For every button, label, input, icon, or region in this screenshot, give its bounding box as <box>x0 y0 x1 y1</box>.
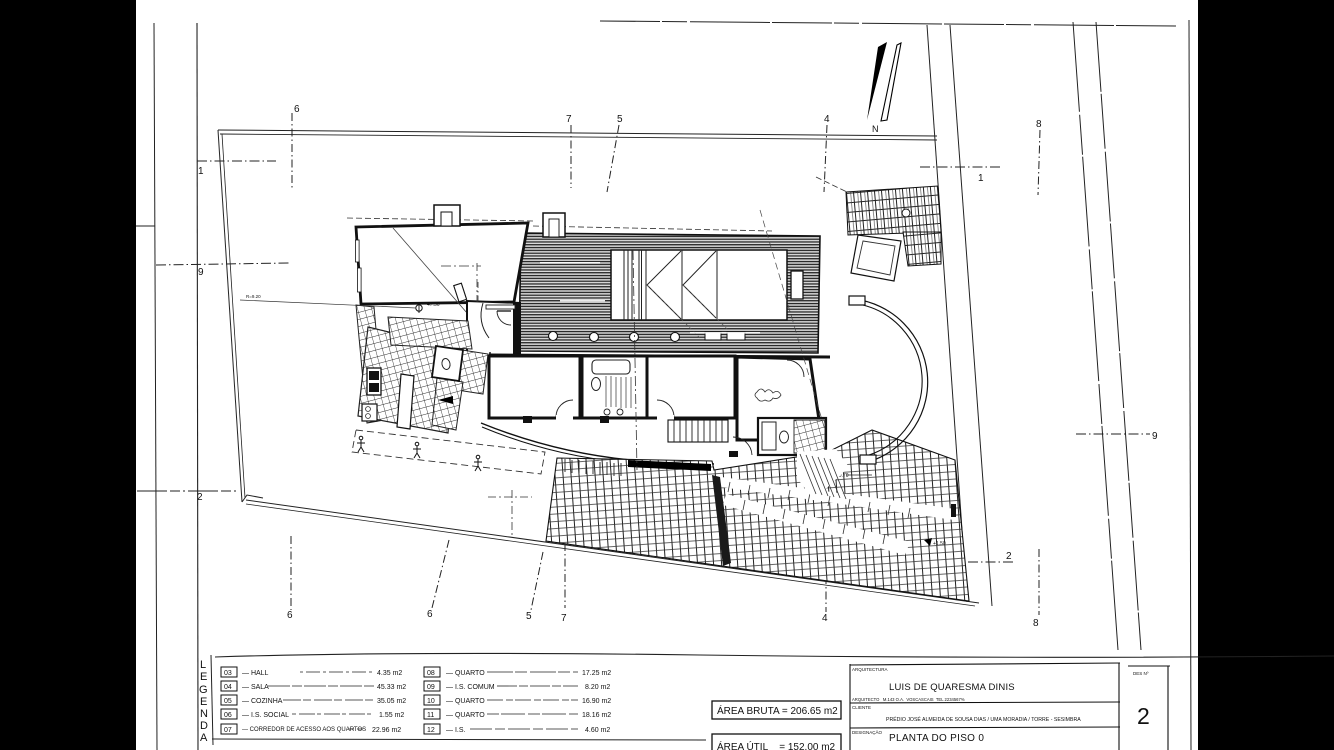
svg-text:CLIENTE: CLIENTE <box>852 705 871 710</box>
svg-text:ARQUITECTURA: ARQUITECTURA <box>852 667 888 672</box>
svg-text:17.25 m2: 17.25 m2 <box>582 670 611 677</box>
svg-text:8.20 m2: 8.20 m2 <box>585 684 610 691</box>
svg-text:5: 5 <box>617 114 623 125</box>
svg-text:1: 1 <box>978 173 984 184</box>
svg-text:1: 1 <box>198 166 204 177</box>
svg-text:LUIS DE QUARESMA DINIS: LUIS DE QUARESMA DINIS <box>889 682 1015 693</box>
svg-text:4: 4 <box>822 613 828 624</box>
svg-text:DES Nº: DES Nº <box>1133 671 1149 676</box>
svg-text:— I.S.: — I.S. <box>446 727 466 734</box>
svg-text:PRÉDIO JOSÉ ALMEIDA DE SOUSA D: PRÉDIO JOSÉ ALMEIDA DE SOUSA DIAS / UMA … <box>886 716 1081 723</box>
svg-text:— QUARTO: — QUARTO <box>446 712 485 719</box>
svg-text:7: 7 <box>561 613 567 624</box>
svg-text:8: 8 <box>1033 618 1039 629</box>
svg-text:+1.50: +1.50 <box>933 541 946 547</box>
svg-text:12: 12 <box>427 727 435 734</box>
svg-text:09: 09 <box>427 684 435 691</box>
svg-text:— I.S. COMUM: — I.S. COMUM <box>446 684 495 691</box>
svg-text:4.60 m2: 4.60 m2 <box>585 727 610 734</box>
svg-text:4: 4 <box>824 114 830 125</box>
svg-text:11: 11 <box>427 712 434 719</box>
svg-text:6: 6 <box>427 609 433 620</box>
svg-text:2: 2 <box>197 492 203 503</box>
svg-text:N: N <box>872 124 879 134</box>
svg-text:6: 6 <box>287 610 293 621</box>
svg-text:2: 2 <box>1006 551 1012 562</box>
svg-text:08: 08 <box>427 670 435 677</box>
svg-text:R=9.20: R=9.20 <box>246 294 261 299</box>
svg-text:E: E <box>200 671 207 683</box>
svg-text:35.05 m2: 35.05 m2 <box>377 698 406 705</box>
svg-text:16.90 m2: 16.90 m2 <box>582 698 611 705</box>
svg-text:— I.S. SOCIAL: — I.S. SOCIAL <box>242 712 289 719</box>
svg-text:A: A <box>200 732 208 744</box>
svg-text:6: 6 <box>294 104 300 115</box>
svg-text:E: E <box>200 696 207 708</box>
svg-text:05: 05 <box>224 698 232 705</box>
svg-text:— SALA: — SALA <box>242 684 269 691</box>
svg-text:7: 7 <box>566 114 572 125</box>
svg-text:1.55 m2: 1.55 m2 <box>379 712 404 719</box>
svg-text:07: 07 <box>224 727 232 734</box>
svg-text:G: G <box>199 684 208 696</box>
svg-text:— QUARTO: — QUARTO <box>446 670 485 677</box>
svg-text:47.56: 47.56 <box>427 302 440 308</box>
svg-text:— QUARTO: — QUARTO <box>446 698 485 705</box>
svg-text:— COZINHA: — COZINHA <box>242 698 283 705</box>
svg-text:PLANTA DO PISO 0: PLANTA DO PISO 0 <box>889 733 984 744</box>
svg-text:8: 8 <box>1036 119 1042 130</box>
svg-text:— HALL: — HALL <box>242 670 269 677</box>
svg-text:ARQUITECTO M.143 O.A. VOSCA: ARQUITECTO M.143 O.A. VOSCASCAIS TEL 223… <box>852 697 965 702</box>
svg-text:10: 10 <box>427 698 435 705</box>
svg-text:5: 5 <box>526 611 532 622</box>
svg-text:L: L <box>200 659 206 671</box>
svg-text:— CORREDOR DE ACESSO AOS QUART: — CORREDOR DE ACESSO AOS QUARTOS <box>242 727 366 733</box>
svg-text:D: D <box>200 720 208 732</box>
svg-text:ÁREA ÚTIL = 152.00 m2: ÁREA ÚTIL = 152.00 m2 <box>717 740 836 750</box>
svg-text:DESIGNAÇÃO: DESIGNAÇÃO <box>852 729 883 735</box>
svg-text:22.96 m2: 22.96 m2 <box>372 727 401 734</box>
svg-text:N: N <box>200 708 208 720</box>
svg-text:4.35 m2: 4.35 m2 <box>377 670 402 677</box>
svg-text:9: 9 <box>1152 431 1158 442</box>
svg-text:9: 9 <box>198 267 204 278</box>
svg-text:06: 06 <box>224 712 232 719</box>
svg-text:ÁREA BRUTA = 206.65 m2: ÁREA BRUTA = 206.65 m2 <box>717 704 838 717</box>
svg-text:2: 2 <box>1137 703 1150 729</box>
svg-text:45.33 m2: 45.33 m2 <box>377 684 406 691</box>
svg-text:18.16 m2: 18.16 m2 <box>582 712 611 719</box>
svg-text:04: 04 <box>224 684 232 691</box>
svg-text:03: 03 <box>224 670 232 677</box>
